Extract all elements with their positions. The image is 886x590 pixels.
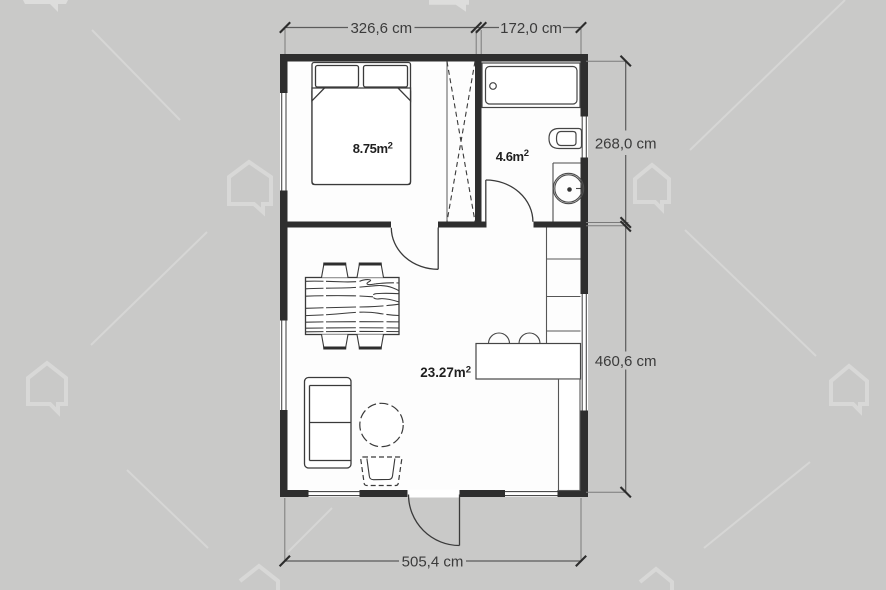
svg-text:460,6 cm: 460,6 cm <box>595 353 657 370</box>
svg-text:172,0 cm: 172,0 cm <box>500 20 562 37</box>
svg-text:23.27m2: 23.27m2 <box>420 364 471 380</box>
svg-text:505,4 cm: 505,4 cm <box>402 554 464 571</box>
svg-text:8.75m2: 8.75m2 <box>353 140 393 156</box>
svg-text:268,0 cm: 268,0 cm <box>595 136 657 153</box>
svg-text:326,6 cm: 326,6 cm <box>350 20 412 37</box>
